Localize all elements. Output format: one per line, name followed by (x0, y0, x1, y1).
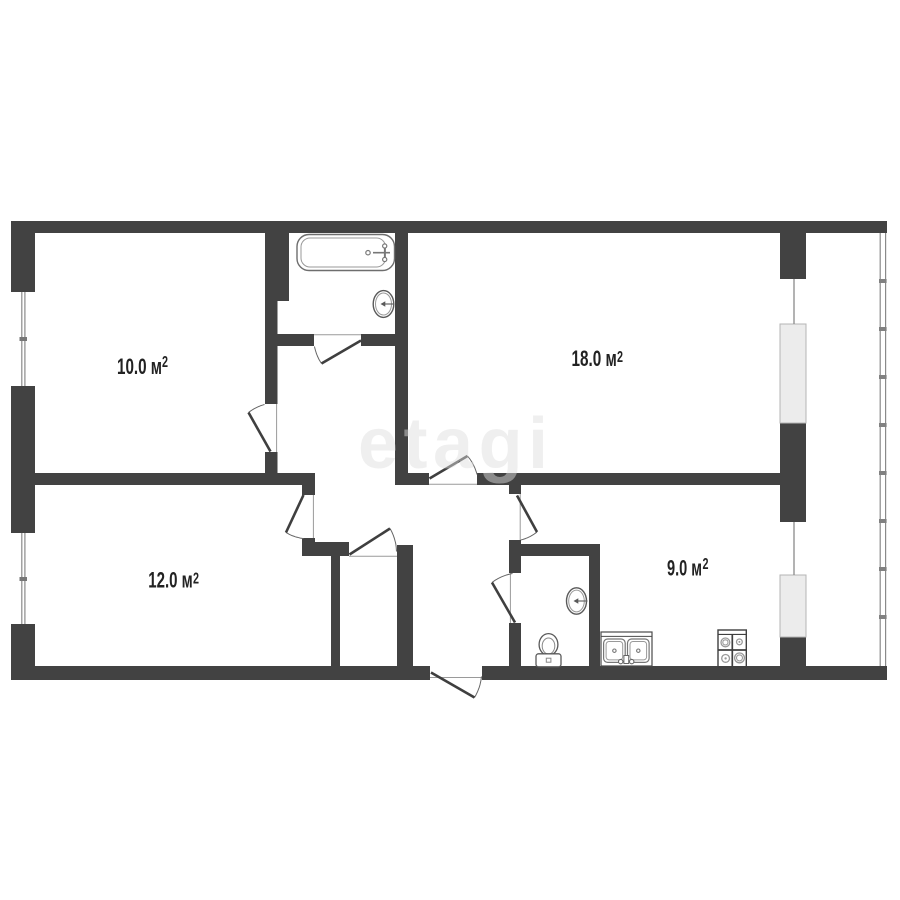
svg-text:18.0 м: 18.0 м (572, 346, 617, 371)
svg-text:etagi: etagi (358, 404, 554, 484)
svg-text:2: 2 (617, 349, 623, 366)
svg-text:2: 2 (162, 354, 168, 371)
svg-text:12.0 м: 12.0 м (148, 568, 193, 593)
svg-text:10.0 м: 10.0 м (117, 354, 162, 379)
svg-text:2: 2 (193, 571, 199, 588)
svg-text:2: 2 (703, 556, 709, 573)
svg-text:9.0 м: 9.0 м (667, 556, 702, 581)
